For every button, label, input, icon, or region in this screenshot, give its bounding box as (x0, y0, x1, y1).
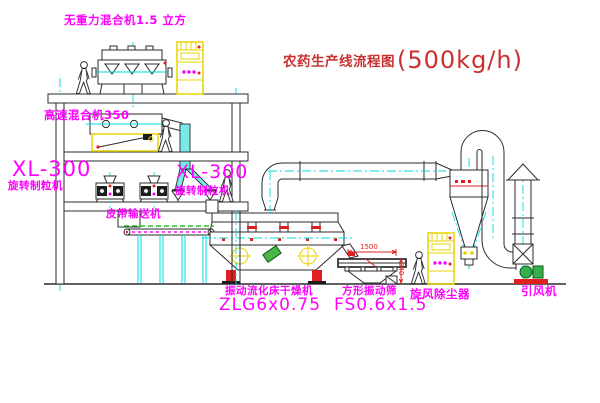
diagram-canvas: 农药生产线流程图 (500kg/h) 无重力混合机1.5 立方 高速混合机350… (0, 0, 600, 403)
label-no-gravity-mixer: 无重力混合机1.5 立方 (64, 15, 186, 27)
title-capacity: (500kg/h) (397, 46, 523, 74)
cyclone-separator (450, 131, 516, 271)
title-text: 农药生产线流程图 (283, 50, 395, 70)
induced-draft-fan (514, 266, 548, 284)
fluid-bed-dryer (202, 200, 358, 284)
label-cyclone: 旋风除尘器 (410, 289, 470, 301)
label-belt-conveyor: 皮带输送机 (106, 209, 161, 220)
dimension-sieve-height: 340 (397, 262, 404, 275)
control-cabinet-ground (428, 233, 454, 284)
belt-conveyor (118, 211, 214, 283)
label-granulator-left-model: XL-300 (12, 159, 91, 180)
exhaust-duct (262, 161, 452, 214)
person-roof (76, 62, 90, 94)
label-dryer-model: ZLG6x0.75 (219, 297, 321, 314)
label-fan: 引风机 (521, 286, 557, 298)
label-granulator-right-model: XL-300 (176, 163, 248, 182)
dimension-sieve-length: 1500 (360, 244, 378, 251)
control-cabinet-roof (177, 42, 203, 94)
label-high-speed-mixer: 高速混合机350 (44, 110, 130, 122)
label-granulator-right-name: 旋转制粒机 (175, 186, 230, 197)
vibrating-sieve (338, 249, 406, 284)
page-title: 农药生产线流程图 (500kg/h) (283, 46, 523, 74)
person-ground (411, 252, 425, 284)
label-granulator-left-name: 旋转制粒机 (8, 181, 63, 192)
